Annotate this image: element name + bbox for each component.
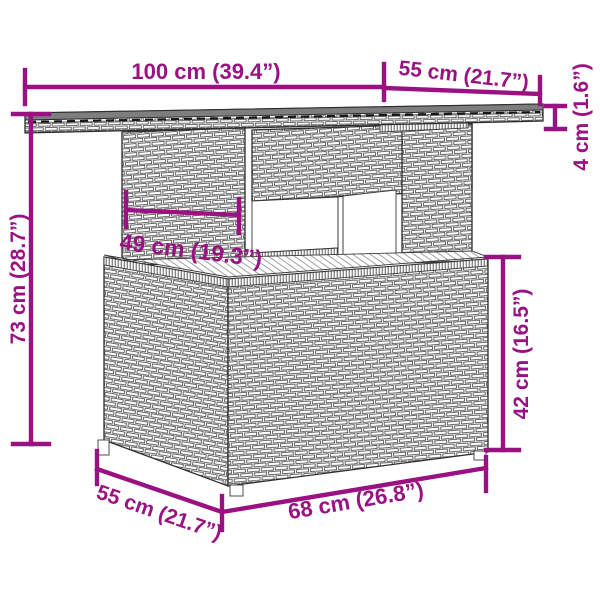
- dimension-label-total-height: 73 cm (28.7”): [7, 214, 30, 345]
- dimension-label-top-width: 100 cm (39.4”): [131, 59, 280, 84]
- table-foot: [98, 440, 109, 455]
- dimension-label-base-height: 42 cm (16.5”): [510, 289, 533, 420]
- dimension-top-depth: 55 cm (21.7”): [384, 57, 540, 104]
- pedestal-opening: [252, 197, 338, 253]
- pedestal-right-panel: [402, 124, 472, 263]
- dimension-total-height: 73 cm (28.7”): [7, 114, 49, 444]
- table-foot: [230, 485, 243, 496]
- base-left-face: [104, 257, 228, 486]
- table-base-box: [98, 251, 488, 496]
- pedestal-right-gap: [343, 190, 396, 262]
- table-illustration: [25, 104, 543, 496]
- dimension-label-top-thickness: 4 cm (1.6”): [570, 63, 593, 170]
- base-front-face: [228, 259, 488, 486]
- dimension-top-width: 100 cm (39.4”): [25, 59, 384, 104]
- dimension-diagram-svg: 100 cm (39.4”) 55 cm (21.7”) 4 cm (1.6”)…: [0, 0, 600, 600]
- diagram-canvas: 100 cm (39.4”) 55 cm (21.7”) 4 cm (1.6”)…: [0, 0, 600, 600]
- dimension-top-thickness: 4 cm (1.6”): [546, 63, 593, 170]
- dimension-label-base-width: 68 cm (26.8”): [286, 477, 425, 524]
- dimension-base-height: 42 cm (16.5”): [486, 257, 533, 450]
